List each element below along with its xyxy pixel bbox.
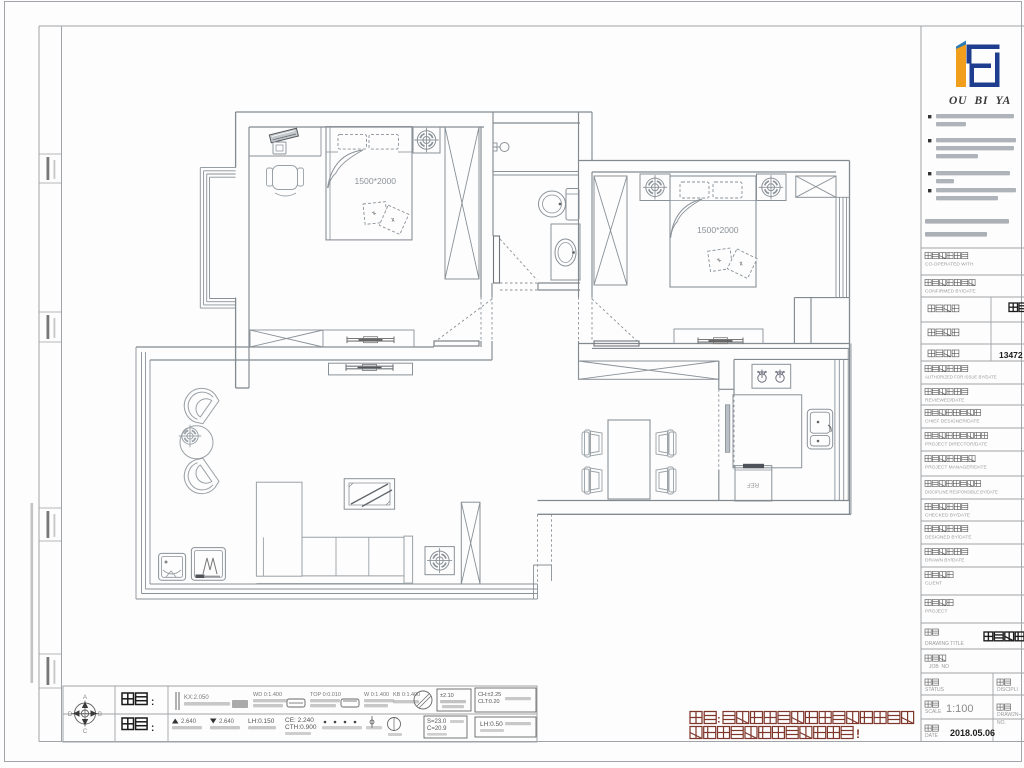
svg-text:2018.05.06: 2018.05.06 xyxy=(950,728,995,738)
svg-text:2.640: 2.640 xyxy=(219,719,235,725)
svg-text:NO.: NO. xyxy=(997,720,1006,726)
svg-text:REF: REF xyxy=(747,481,759,487)
svg-text:CHECKED BY/DATE: CHECKED BY/DATE xyxy=(925,513,970,519)
svg-text:DISCIPLINE RESPONSIBLE BY/DATE: DISCIPLINE RESPONSIBLE BY/DATE xyxy=(925,490,998,495)
svg-text::: : xyxy=(151,697,154,708)
svg-text:DATE: DATE xyxy=(925,733,939,739)
svg-text:D: D xyxy=(68,712,73,718)
svg-text:SCALE: SCALE xyxy=(925,709,942,715)
svg-text:OU BI YA: OU BI YA xyxy=(949,95,1011,107)
svg-text:DRAWING TITLE: DRAWING TITLE xyxy=(925,641,965,647)
svg-text:PROJECT: PROJECT xyxy=(925,609,947,615)
svg-text:DRAWN BY/DATE: DRAWN BY/DATE xyxy=(925,558,964,564)
svg-text:CO-OPERATED WITH: CO-OPERATED WITH xyxy=(925,262,974,268)
svg-text:1500*2000: 1500*2000 xyxy=(355,176,397,186)
svg-text:13472: 13472 xyxy=(999,350,1023,360)
svg-text:CLT:0.20: CLT:0.20 xyxy=(478,699,500,705)
svg-text:CONFIRMED BY/DATE: CONFIRMED BY/DATE xyxy=(925,289,976,295)
svg-text::: : xyxy=(717,714,721,726)
svg-text:TOP 0:0.010: TOP 0:0.010 xyxy=(310,692,341,698)
svg-text:CE: 2.240: CE: 2.240 xyxy=(285,717,314,724)
svg-text:W 0:1.400: W 0:1.400 xyxy=(364,692,389,698)
svg-text:DESIGNED BY/DATE: DESIGNED BY/DATE xyxy=(925,535,972,541)
svg-text:1:100: 1:100 xyxy=(946,703,974,715)
svg-text:AUTHORIZED FOR ISSUE BY/DATE: AUTHORIZED FOR ISSUE BY/DATE xyxy=(925,375,997,380)
svg-text:LH:0.150: LH:0.150 xyxy=(248,718,275,725)
svg-text:A: A xyxy=(83,695,87,701)
svg-text:KB 0:1.400: KB 0:1.400 xyxy=(393,692,420,698)
svg-text:PROJECT DIRECTOR/DATE: PROJECT DIRECTOR/DATE xyxy=(925,442,987,448)
svg-text:JOB NO: JOB NO xyxy=(929,664,949,670)
svg-text:KX:2.050: KX:2.050 xyxy=(184,695,209,701)
svg-text:LH:0.50: LH:0.50 xyxy=(480,721,503,728)
svg-text:!: ! xyxy=(856,727,860,741)
svg-text:C=20.9: C=20.9 xyxy=(427,726,447,732)
svg-text::: : xyxy=(151,723,154,734)
svg-text:CH:±2.25: CH:±2.25 xyxy=(478,692,501,698)
svg-text:DISCIPLI: DISCIPLI xyxy=(997,687,1018,693)
svg-text:S=23.0: S=23.0 xyxy=(427,719,447,725)
svg-text:2.640: 2.640 xyxy=(181,719,197,725)
svg-text:PROJECT MANAGER/DATE: PROJECT MANAGER/DATE xyxy=(925,465,987,471)
svg-text:WD 0:1.400: WD 0:1.400 xyxy=(253,692,282,698)
svg-text:1500*2000: 1500*2000 xyxy=(697,225,739,235)
svg-text:REVIEWED/DATE: REVIEWED/DATE xyxy=(925,398,964,404)
svg-text:STATUS: STATUS xyxy=(925,687,945,693)
svg-text:CTH:0.900: CTH:0.900 xyxy=(285,724,317,731)
svg-text:B: B xyxy=(98,712,102,718)
svg-text:CHIEF DESIGNER/DATE: CHIEF DESIGNER/DATE xyxy=(925,419,980,425)
svg-text:DRAW2N¬: DRAW2N¬ xyxy=(997,712,1021,718)
svg-text:C: C xyxy=(83,729,88,735)
svg-text:±2.10: ±2.10 xyxy=(440,693,454,699)
svg-text:CLIENT: CLIENT xyxy=(925,581,942,587)
